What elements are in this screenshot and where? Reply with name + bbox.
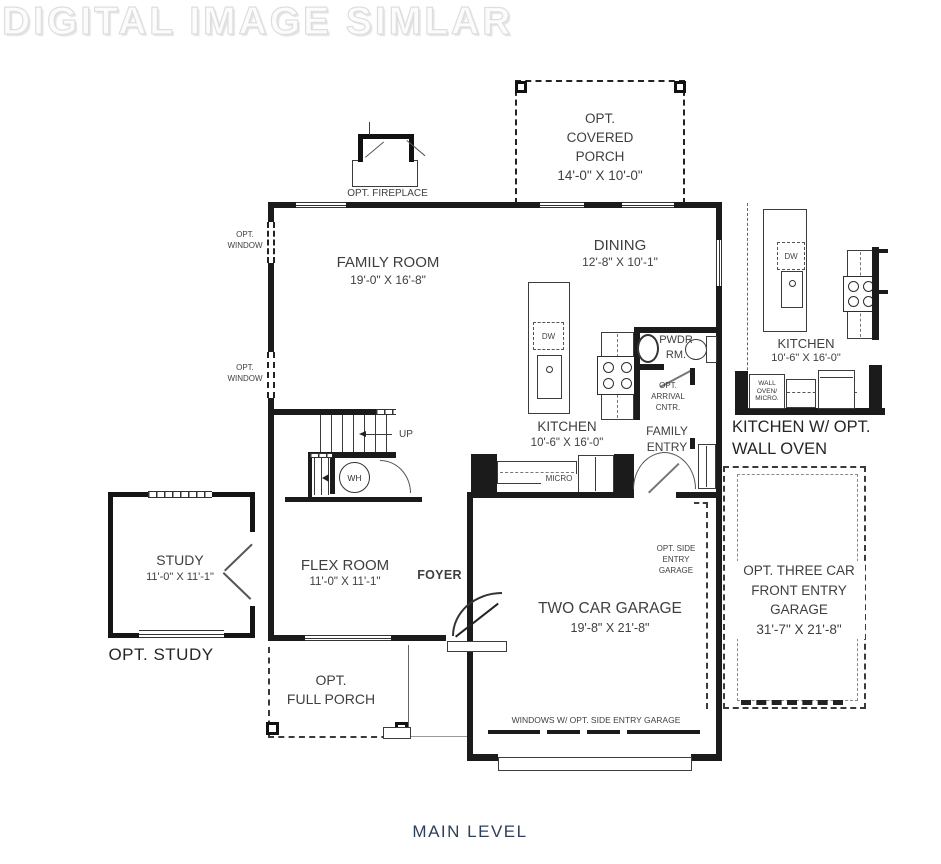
dining-dims: 12'-8" X 10'-1" xyxy=(575,254,665,270)
inset-caption: KITCHEN W/ OPT. WALL OVEN xyxy=(732,416,892,461)
porch-step xyxy=(383,727,411,739)
opt-window-lower xyxy=(267,352,275,398)
refrigerator-door-line xyxy=(595,457,596,491)
three-car-door-dash xyxy=(741,700,843,705)
study-top-window xyxy=(148,491,212,498)
basement-stair-wall xyxy=(308,458,312,497)
front-step xyxy=(447,641,507,652)
window-bar-gap xyxy=(540,729,547,735)
garage-window-bar xyxy=(488,730,700,734)
stair-tread xyxy=(320,415,321,452)
up-arrow-line xyxy=(366,434,392,435)
fireplace-box xyxy=(358,134,414,162)
fireplace-hearth xyxy=(352,160,418,187)
refrigerator xyxy=(578,455,614,493)
range-burners xyxy=(597,356,638,395)
porch-post xyxy=(266,722,279,735)
two-car-garage-name: TWO CAR GARAGE xyxy=(530,599,690,620)
watermark-text: DIGITAL IMAGE SIMLAR xyxy=(2,0,562,44)
basement-stair-tread xyxy=(314,458,315,495)
flex-top-wall xyxy=(285,497,422,502)
porch-post xyxy=(515,81,527,93)
side-entry-dash xyxy=(694,502,708,504)
inset-kitchen-dims: 10'-6" X 16'-0" xyxy=(762,351,850,366)
floor-plan: DIGITAL IMAGE SIMLAR MAIN LEVEL OPT. COV… xyxy=(0,0,941,864)
opt-side-entry-label: OPT. SIDE ENTRY GARAGE xyxy=(646,544,706,576)
kitchen-dims: 10'-6" X 16'-0" xyxy=(522,436,612,452)
opt-window-upper-label: OPT. WINDOW xyxy=(223,230,267,252)
cabinet-block xyxy=(614,454,634,493)
windows-note-label: WINDOWS W/ OPT. SIDE ENTRY GARAGE xyxy=(498,715,694,726)
garage-bottom-wall xyxy=(691,754,722,761)
opt-arrival-label: OPT. ARRIVAL CNTR. xyxy=(642,381,694,413)
burner xyxy=(603,378,614,389)
covered-porch-label: OPT. COVERED PORCH 14'-0" X 10'-0" xyxy=(530,110,670,186)
up-label: UP xyxy=(394,428,418,442)
water-heater: WH xyxy=(339,462,370,493)
opt-study-caption: OPT. STUDY xyxy=(103,644,219,667)
toilet-tank xyxy=(706,336,717,363)
window-flex-front xyxy=(305,635,391,641)
island-sink xyxy=(537,355,562,399)
burner xyxy=(621,378,632,389)
basement-arrow-head xyxy=(322,474,329,482)
wall-tick xyxy=(879,290,888,294)
fireplace-vent-tick xyxy=(369,122,370,135)
window-bar-gap xyxy=(580,729,587,735)
refrigerator-line xyxy=(820,377,853,378)
inset-right-wall xyxy=(872,247,879,340)
sink-faucet-dot xyxy=(546,366,553,373)
inset-sink xyxy=(781,271,803,308)
study-name: STUDY xyxy=(124,551,236,570)
kitchen-name: KITCHEN xyxy=(533,418,601,436)
wall-left xyxy=(268,202,274,641)
garage-door-panel xyxy=(498,757,692,771)
study-dims: 11'-0" X 11'-1" xyxy=(122,570,238,585)
stair-tread xyxy=(353,415,354,452)
up-arrow-head xyxy=(359,431,366,437)
inset-refrigerator xyxy=(818,370,855,409)
porch-post xyxy=(674,81,686,93)
inset-kitchen-name: KITCHEN xyxy=(770,335,842,353)
porch-edge-line xyxy=(408,645,409,737)
wall-oven-micro: WALL OVEN/ MICRO. xyxy=(749,374,785,409)
study-front-window xyxy=(139,630,224,638)
window-bar-gap xyxy=(620,729,627,735)
coat-closet-line xyxy=(706,446,707,487)
garage-bottom-wall xyxy=(467,754,498,761)
wh-door-arc xyxy=(380,460,411,493)
coat-closet xyxy=(698,444,716,489)
plan-title: MAIN LEVEL xyxy=(355,822,585,842)
burner xyxy=(603,362,614,373)
three-car-garage-label: OPT. THREE CAR FRONT ENTRY GARAGE 31'-7"… xyxy=(733,561,865,639)
counter-dash-line xyxy=(500,472,574,473)
dishwasher: DW xyxy=(533,322,564,350)
inset-dishwasher: DW xyxy=(777,242,805,270)
stair-tread xyxy=(342,415,343,452)
window-dining-top xyxy=(540,202,584,208)
opt-window-lower-label: OPT. WINDOW xyxy=(223,363,267,385)
foyer-label: FOYER xyxy=(412,567,467,584)
window-dining-top2 xyxy=(622,202,674,208)
front-door-arc xyxy=(452,592,502,636)
flex-room-name: FLEX ROOM xyxy=(295,556,395,576)
pwdr-label: PWDR RM. xyxy=(652,333,700,363)
family-entry-label: FAMILY ENTRY xyxy=(636,423,698,455)
garage-right-wall xyxy=(716,497,722,760)
garage-top-wall xyxy=(467,492,634,498)
flex-room-dims: 11'-0" X 11'-1" xyxy=(300,575,390,591)
micro-label: MICRO xyxy=(541,474,577,485)
stair-tread xyxy=(331,415,332,452)
entry-door-arc xyxy=(633,452,665,489)
side-entry-dash xyxy=(706,502,708,709)
window-family-top xyxy=(296,202,346,208)
wall-tick xyxy=(879,249,888,253)
window-dining-right xyxy=(716,240,722,286)
pantry-cabinet xyxy=(471,454,497,493)
opt-fireplace-label: OPT. FIREPLACE xyxy=(340,187,435,201)
full-porch-label: OPT. FULL PORCH xyxy=(285,671,377,709)
sink-faucet-dot xyxy=(789,280,796,287)
family-room-dims: 19'-0" X 16'-8" xyxy=(338,272,438,288)
two-car-garage-dims: 19'-8" X 21'-8" xyxy=(545,620,675,637)
wh-closet-wall xyxy=(330,458,335,494)
burner xyxy=(621,362,632,373)
porch-edge-line xyxy=(409,736,467,737)
inset-bottom-wall xyxy=(735,408,885,415)
burner xyxy=(848,296,859,307)
family-room-name: FAMILY ROOM xyxy=(333,253,443,273)
burner xyxy=(848,281,859,292)
pwdr-bottom-wall xyxy=(640,364,664,370)
opt-window-upper xyxy=(267,222,275,263)
inset-right-wall2 xyxy=(869,365,882,415)
inset-counter-box xyxy=(786,379,816,408)
